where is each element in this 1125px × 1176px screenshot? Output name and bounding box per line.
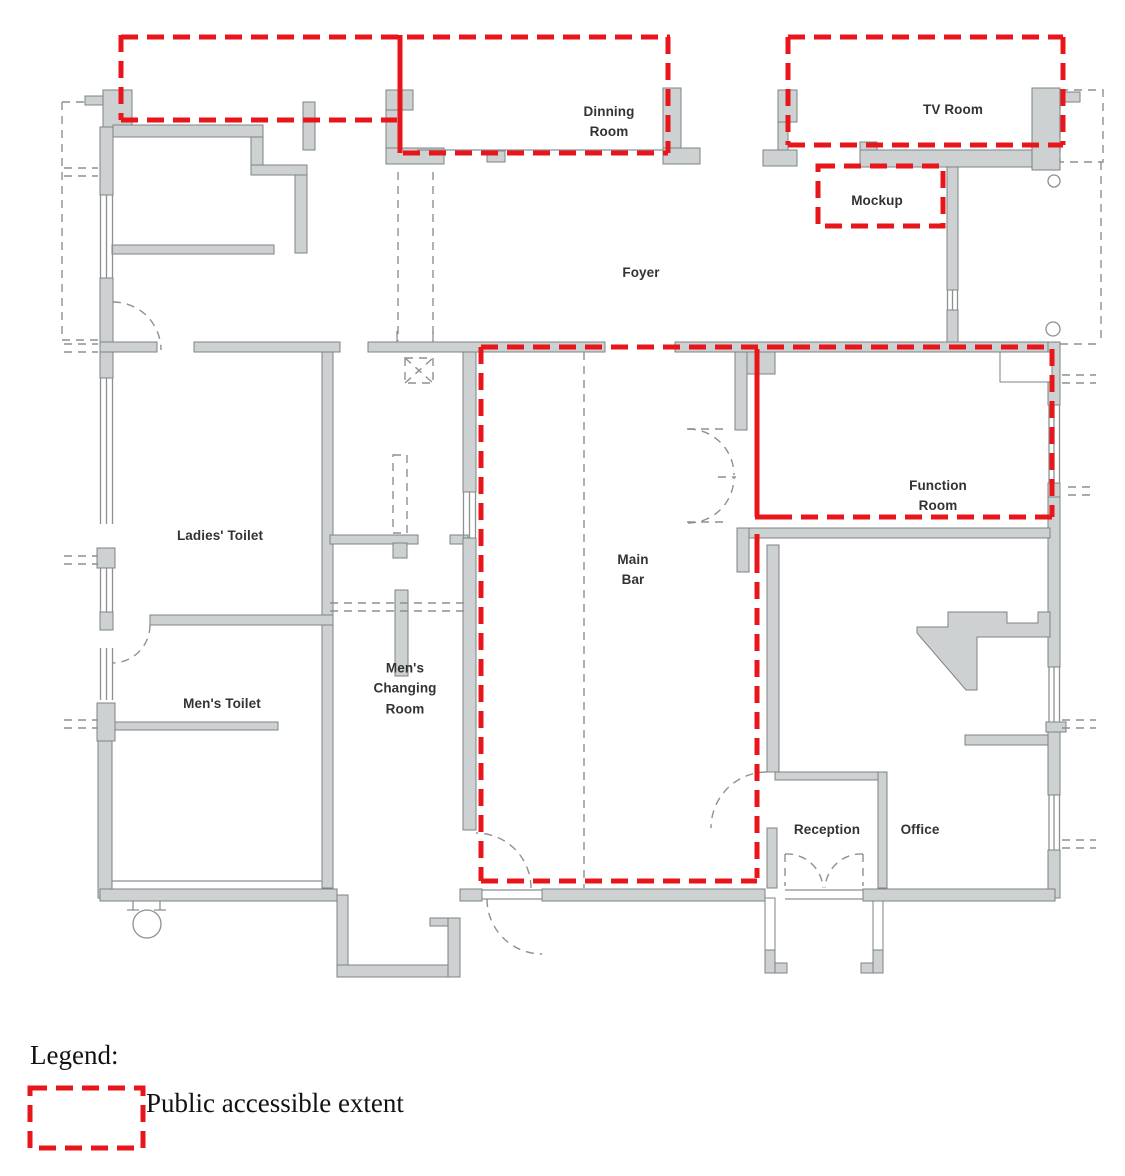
door-swing-arc	[785, 854, 823, 888]
room-label-mens-changing: Men's Changing Room	[373, 659, 436, 720]
room-label-function-room: Function Room	[909, 476, 967, 517]
legend-red-dashed-rectangle-symbol	[24, 1082, 150, 1154]
door-leaf-lines	[687, 429, 736, 522]
legend-title: Legend:	[30, 1040, 118, 1071]
room-label-foyer: Foyer	[622, 263, 659, 283]
room-label-mockup: Mockup	[851, 191, 903, 211]
room-label-reception: Reception	[794, 820, 860, 840]
door-leaf-lines	[785, 854, 863, 886]
door-knob-circle	[1046, 322, 1060, 336]
room-label-main-bar: Main Bar	[617, 550, 648, 591]
room-label-tv-room: TV Room	[923, 100, 983, 120]
room-label-office: Office	[901, 820, 940, 840]
door-knob-circle	[1048, 175, 1060, 187]
door-swing-arc	[112, 625, 150, 663]
room-label-ladies-toilet: Ladies' Toilet	[177, 526, 263, 546]
door-swing-arc	[825, 854, 863, 888]
extent-solid-divider	[755, 349, 775, 556]
office-arrow-symbol	[917, 612, 1050, 690]
room-label-dinning: Dinning Room	[584, 102, 635, 143]
door-swing-arc	[688, 429, 734, 475]
room-label-mens-toilet: Men's Toilet	[183, 694, 261, 714]
floor-plan-canvas: Dinning Room TV Room Mockup Foyer Ladies…	[0, 0, 1125, 1176]
door-swing-arc	[688, 477, 734, 523]
extent-tv-room	[788, 37, 1063, 145]
legend-item-label: Public accessible extent	[146, 1088, 404, 1119]
column-circle-symbol	[133, 910, 161, 938]
door-swing-arc	[487, 899, 542, 954]
